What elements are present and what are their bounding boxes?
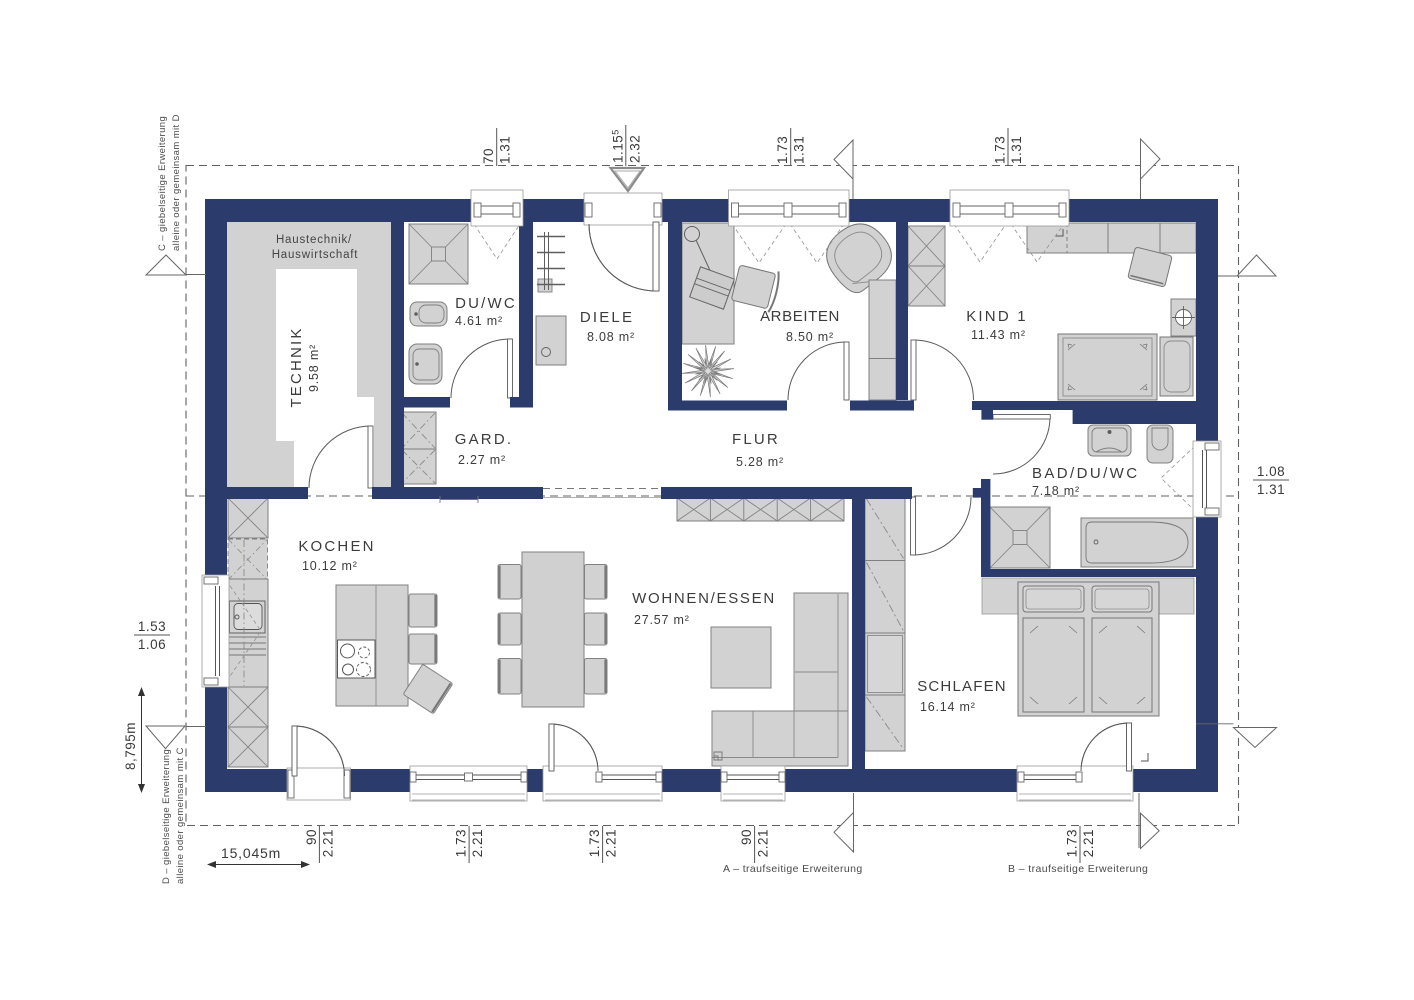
svg-text:GARD.: GARD.	[455, 431, 514, 448]
svg-text:1.31: 1.31	[792, 136, 807, 164]
svg-text:8.08 m²: 8.08 m²	[587, 330, 635, 344]
svg-text:2.21: 2.21	[604, 829, 619, 857]
svg-text:1.73: 1.73	[993, 136, 1008, 164]
svg-text:90: 90	[739, 829, 754, 845]
svg-text:C – giebelseitige Erweiterung: C – giebelseitige Erweiterung	[157, 116, 168, 251]
svg-text:B – traufseitige Erweiterung: B – traufseitige Erweiterung	[1008, 863, 1148, 875]
svg-text:SCHLAFEN: SCHLAFEN	[917, 678, 1007, 695]
svg-text:BAD/DU/WC: BAD/DU/WC	[1032, 465, 1139, 482]
svg-text:1.73: 1.73	[587, 829, 602, 857]
svg-text:90: 90	[304, 829, 319, 845]
svg-text:70: 70	[481, 148, 496, 164]
svg-text:TECHNIK: TECHNIK	[288, 326, 305, 407]
svg-text:Hauswirtschaft: Hauswirtschaft	[272, 249, 359, 261]
svg-text:10.12 m²: 10.12 m²	[302, 559, 358, 573]
svg-text:1.31: 1.31	[498, 136, 513, 164]
svg-text:11.43 m²: 11.43 m²	[971, 328, 1026, 342]
svg-text:27.57 m²: 27.57 m²	[634, 613, 690, 627]
svg-text:A – traufseitige Erweiterung: A – traufseitige Erweiterung	[723, 863, 863, 875]
svg-text:KOCHEN: KOCHEN	[298, 538, 375, 555]
svg-text:2.21: 2.21	[320, 829, 335, 857]
svg-text:1.73: 1.73	[1065, 829, 1080, 857]
svg-text:4.61 m²: 4.61 m²	[455, 314, 503, 328]
svg-text:1.73: 1.73	[454, 829, 469, 857]
svg-text:alleine oder gemeinsam mit D: alleine oder gemeinsam mit D	[171, 114, 182, 251]
svg-text:9.58 m²: 9.58 m²	[307, 344, 321, 392]
svg-text:1.31: 1.31	[1257, 482, 1285, 497]
svg-text:alleine oder gemeinsam mit C: alleine oder gemeinsam mit C	[175, 747, 186, 884]
svg-text:DIELE: DIELE	[580, 309, 634, 326]
svg-text:5.28 m²: 5.28 m²	[736, 455, 784, 469]
svg-text:2.21: 2.21	[756, 829, 771, 857]
svg-text:7.18 m²: 7.18 m²	[1032, 484, 1080, 498]
svg-text:2.21: 2.21	[1081, 829, 1096, 857]
svg-text:WOHNEN/ESSEN: WOHNEN/ESSEN	[632, 590, 776, 607]
svg-text:8,795m: 8,795m	[123, 722, 138, 770]
svg-text:1.06: 1.06	[138, 637, 166, 652]
svg-text:DU/WC: DU/WC	[455, 295, 517, 312]
svg-text:1.53: 1.53	[138, 619, 166, 634]
svg-text:1.31: 1.31	[1009, 136, 1024, 164]
svg-text:2.27 m²: 2.27 m²	[458, 453, 506, 467]
svg-text:KIND 1: KIND 1	[966, 308, 1028, 325]
svg-text:Haustechnik/: Haustechnik/	[276, 234, 352, 246]
svg-text:1.08: 1.08	[1257, 464, 1285, 479]
svg-text:15,045m: 15,045m	[221, 845, 281, 861]
svg-text:D – giebelseitige Erweiterung: D – giebelseitige Erweiterung	[161, 749, 172, 884]
svg-text:16.14 m²: 16.14 m²	[920, 700, 976, 714]
svg-text:8.50 m²: 8.50 m²	[786, 330, 834, 344]
svg-text:1.73: 1.73	[775, 136, 790, 164]
svg-text:2.21: 2.21	[470, 829, 485, 857]
svg-text:ARBEITEN: ARBEITEN	[760, 308, 840, 325]
svg-text:FLUR: FLUR	[732, 431, 780, 448]
svg-text:2.32: 2.32	[627, 135, 642, 163]
